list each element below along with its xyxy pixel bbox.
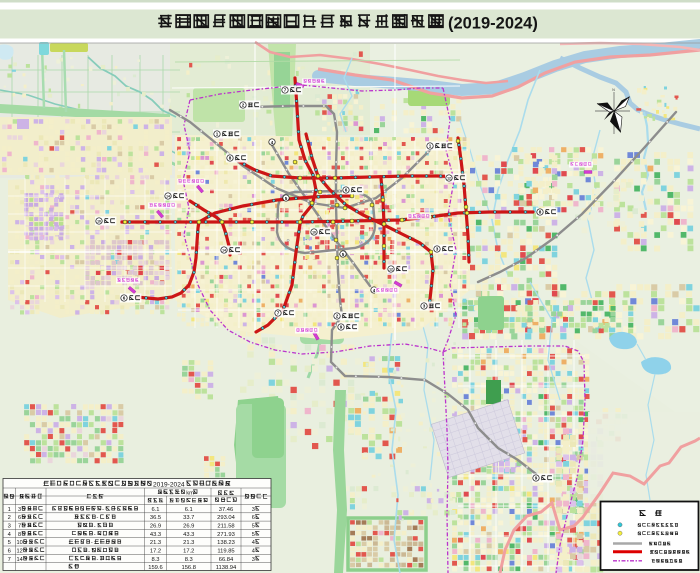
- svg-text:33.7: 33.7: [183, 515, 194, 521]
- svg-text:17.2: 17.2: [150, 548, 161, 554]
- svg-text:7: 7: [284, 88, 287, 93]
- svg-text:293.04: 293.04: [217, 515, 236, 521]
- svg-text:2: 2: [336, 314, 339, 319]
- svg-text:8: 8: [18, 532, 21, 538]
- svg-text:138.23: 138.23: [217, 540, 235, 546]
- svg-text:6: 6: [252, 515, 255, 521]
- svg-text:6.1: 6.1: [151, 507, 159, 513]
- svg-text:26.9: 26.9: [150, 524, 161, 530]
- svg-text:14: 14: [166, 195, 170, 199]
- svg-text:1: 1: [8, 507, 11, 513]
- svg-text:-: -: [94, 524, 96, 530]
- svg-text:12: 12: [17, 548, 23, 554]
- svg-text:3: 3: [252, 507, 255, 513]
- svg-text:21.3: 21.3: [150, 540, 161, 546]
- svg-text:4: 4: [252, 540, 255, 546]
- svg-text:1: 1: [216, 132, 219, 137]
- svg-text:12: 12: [447, 177, 451, 181]
- svg-text:-: -: [88, 548, 90, 554]
- svg-text:37.46: 37.46: [219, 507, 234, 513]
- svg-text:(2019-2024): (2019-2024): [448, 15, 538, 33]
- svg-text:6: 6: [18, 515, 21, 521]
- svg-text:5: 5: [252, 524, 255, 530]
- svg-text:10: 10: [17, 540, 23, 546]
- svg-text:8: 8: [539, 210, 542, 215]
- svg-text:12: 12: [389, 268, 393, 272]
- svg-text:6.1: 6.1: [185, 507, 193, 513]
- svg-text:2: 2: [242, 103, 245, 108]
- svg-text:3: 3: [423, 304, 426, 309]
- svg-text:21.3: 21.3: [183, 540, 194, 546]
- svg-text:7: 7: [277, 311, 280, 316]
- svg-text:6: 6: [8, 548, 11, 554]
- svg-text:2019-2024: 2019-2024: [153, 481, 185, 488]
- svg-text:5: 5: [285, 196, 288, 201]
- svg-text:119.85: 119.85: [217, 548, 234, 554]
- svg-text:17.2: 17.2: [183, 548, 194, 554]
- svg-text:3: 3: [436, 247, 439, 252]
- svg-text:km: km: [186, 491, 194, 497]
- svg-text:6: 6: [345, 188, 348, 193]
- svg-text:5: 5: [252, 532, 255, 538]
- svg-text:7: 7: [18, 524, 21, 530]
- svg-text:6: 6: [123, 296, 126, 301]
- svg-text:-: -: [97, 515, 99, 521]
- svg-text:5: 5: [8, 540, 11, 546]
- svg-text:43.3: 43.3: [183, 532, 194, 538]
- svg-text:1: 1: [429, 144, 432, 149]
- svg-text:43.3: 43.3: [150, 532, 161, 538]
- svg-text:2: 2: [8, 515, 11, 521]
- svg-text:9: 9: [340, 325, 343, 330]
- svg-text:8: 8: [229, 156, 232, 161]
- svg-text:3: 3: [18, 507, 21, 513]
- svg-text:4: 4: [271, 140, 274, 145]
- svg-text:-: -: [91, 540, 93, 546]
- svg-text:36.5: 36.5: [150, 515, 161, 521]
- svg-text:10: 10: [312, 231, 316, 235]
- svg-text:26.9: 26.9: [183, 524, 194, 530]
- svg-text:3: 3: [8, 524, 11, 530]
- svg-text:-: -: [102, 507, 104, 513]
- svg-text:10: 10: [97, 220, 101, 224]
- svg-text:-: -: [94, 532, 96, 538]
- svg-text:5: 5: [342, 252, 345, 257]
- svg-text:9: 9: [535, 476, 538, 481]
- svg-text:271.93: 271.93: [217, 532, 235, 538]
- svg-text:14: 14: [222, 249, 226, 253]
- svg-text:211.58: 211.58: [217, 524, 234, 530]
